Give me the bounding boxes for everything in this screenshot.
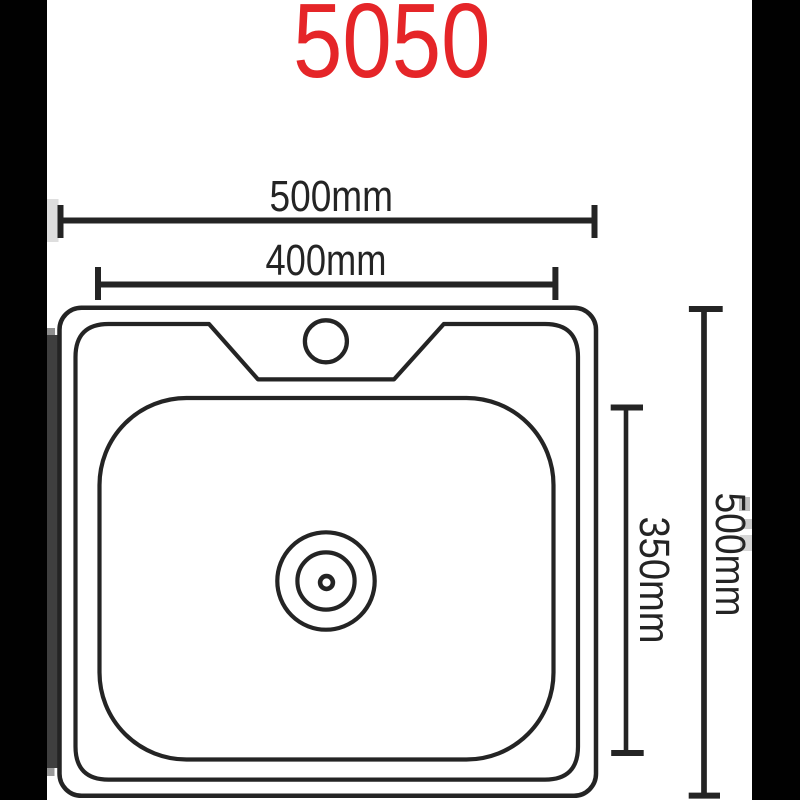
svg-text:400mm: 400mm [266,236,387,285]
svg-text:350mm: 350mm [630,517,678,644]
svg-text:500mm: 500mm [706,493,754,617]
svg-text:5050: 5050 [293,0,491,100]
svg-text:500mm: 500mm [270,172,394,221]
